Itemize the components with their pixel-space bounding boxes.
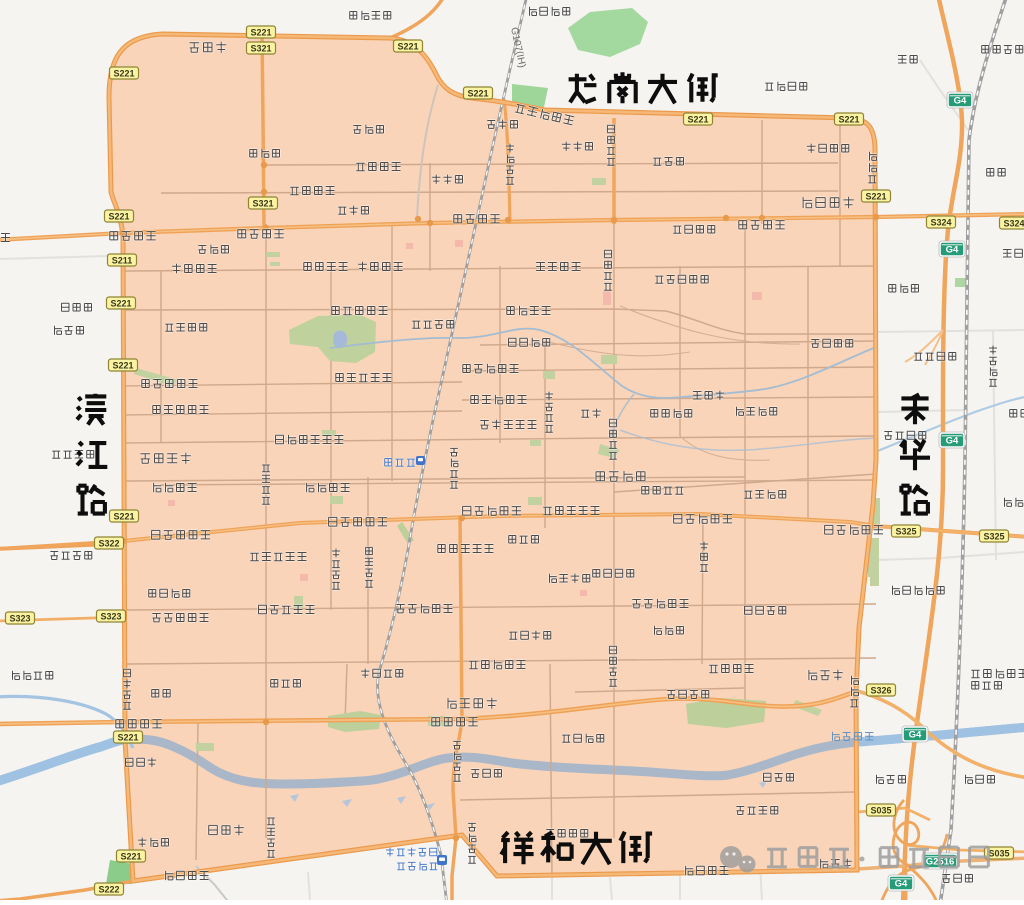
svg-text:S221: S221	[250, 28, 271, 38]
svg-text:S326: S326	[870, 686, 891, 696]
svg-text:G4: G4	[895, 879, 908, 890]
svg-text:S222: S222	[98, 885, 119, 895]
svg-text:S035: S035	[870, 806, 891, 816]
svg-text:S325: S325	[895, 527, 916, 537]
svg-text:S323: S323	[100, 612, 121, 622]
svg-text:S221: S221	[113, 512, 134, 522]
svg-text:S211: S211	[112, 256, 133, 266]
svg-text:S221: S221	[687, 115, 708, 125]
svg-text:S221: S221	[120, 852, 141, 862]
svg-text:S221: S221	[865, 192, 886, 202]
svg-text:S324: S324	[1003, 219, 1024, 229]
svg-text:S323: S323	[9, 614, 30, 624]
svg-text:G4: G4	[954, 96, 967, 107]
svg-text:S221: S221	[397, 42, 418, 52]
svg-text:S221: S221	[108, 212, 129, 222]
svg-text:S324: S324	[930, 218, 951, 228]
svg-text:S035: S035	[988, 849, 1009, 859]
svg-text:G4: G4	[946, 245, 959, 256]
svg-text:G4: G4	[909, 730, 922, 741]
svg-text:S321: S321	[250, 44, 271, 54]
svg-text:S322: S322	[98, 539, 119, 549]
svg-text:S221: S221	[112, 361, 133, 371]
svg-text:S221: S221	[113, 69, 134, 79]
svg-text:S221: S221	[838, 115, 859, 125]
svg-text:S221: S221	[117, 733, 138, 743]
svg-text:S221: S221	[467, 89, 488, 99]
svg-text:S325: S325	[983, 532, 1004, 542]
svg-text:S321: S321	[252, 199, 273, 209]
svg-text:G4: G4	[946, 436, 959, 447]
svg-text:S221: S221	[110, 299, 131, 309]
